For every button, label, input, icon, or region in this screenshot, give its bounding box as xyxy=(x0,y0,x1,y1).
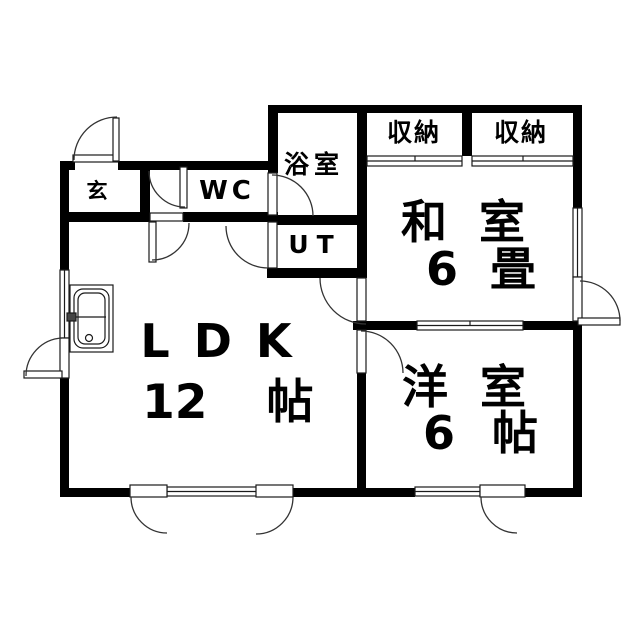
wall-segment xyxy=(118,161,268,170)
ldk-size-unit: 帖 xyxy=(267,375,314,430)
entrance-door-leaf[interactable] xyxy=(113,118,119,161)
wall-segment xyxy=(293,488,415,497)
doorway-washitsu-exterior xyxy=(573,277,582,321)
wall-segment xyxy=(525,488,582,497)
room-label-genkan: 玄 xyxy=(87,179,108,203)
wall-segment xyxy=(268,113,278,173)
youshitsu-size-unit: 帖 xyxy=(492,406,538,460)
room-label-ldk: LDK xyxy=(140,314,315,368)
wall-segment xyxy=(268,215,367,225)
hall-door-leaf[interactable] xyxy=(149,222,156,262)
sink-drain xyxy=(86,335,93,342)
washitsu-char-2: 室 xyxy=(479,195,525,249)
wall-segment xyxy=(267,268,367,278)
wc-door-leaf[interactable] xyxy=(180,167,187,208)
room-label-closet-right: 収納 xyxy=(494,118,548,147)
wall-segment xyxy=(573,105,582,208)
wall-segment xyxy=(357,113,367,268)
room-label-wc: WC xyxy=(199,176,255,206)
wall-segment xyxy=(573,321,582,497)
doorway-wc-hall xyxy=(150,213,183,221)
room-label-bath: 浴室 xyxy=(284,150,344,179)
kitchen-exterior-door-leaf[interactable] xyxy=(24,371,62,378)
doorway-washitsu xyxy=(357,278,366,321)
youshitsu-exterior-door[interactable] xyxy=(480,485,525,497)
room-label-closet-left: 収納 xyxy=(387,118,441,147)
entrance-threshold xyxy=(73,155,118,162)
washitsu-exterior-door-leaf[interactable] xyxy=(578,318,620,325)
washitsu-size-unit: 畳 xyxy=(490,242,536,296)
doorway-bath xyxy=(268,173,277,215)
room-label-utility: UT xyxy=(288,230,341,259)
wall-segment xyxy=(462,113,472,156)
wall-segment xyxy=(353,321,417,330)
faucet-icon xyxy=(67,313,76,321)
wall-segment xyxy=(268,105,582,113)
doorway-youshitsu xyxy=(357,330,366,373)
washitsu-size-number: 6 xyxy=(426,242,458,296)
wall-segment xyxy=(523,321,578,330)
ldk-terrace-door-left[interactable] xyxy=(130,485,167,497)
wall-segment xyxy=(60,212,150,222)
wall-segment xyxy=(60,488,130,497)
floor-plan-page: 玄 WC 浴室 UT 収納 収納 和 室 6 畳 洋 室 6 帖 LDK 12 … xyxy=(0,0,640,640)
kitchen-sink xyxy=(67,285,113,352)
wall-segment xyxy=(140,169,150,213)
wall-segment xyxy=(357,373,366,488)
youshitsu-size-number: 6 xyxy=(423,406,455,460)
floor-plan-svg: 玄 WC 浴室 UT 収納 収納 和 室 6 畳 洋 室 6 帖 LDK 12 … xyxy=(0,0,640,640)
washitsu-char-1: 和 xyxy=(401,195,447,249)
ldk-size-number: 12 xyxy=(142,375,207,430)
ldk-terrace-door-right[interactable] xyxy=(256,485,293,497)
doorway-utility xyxy=(268,222,277,268)
wall-segment xyxy=(183,212,268,222)
wall-segment xyxy=(60,378,69,497)
